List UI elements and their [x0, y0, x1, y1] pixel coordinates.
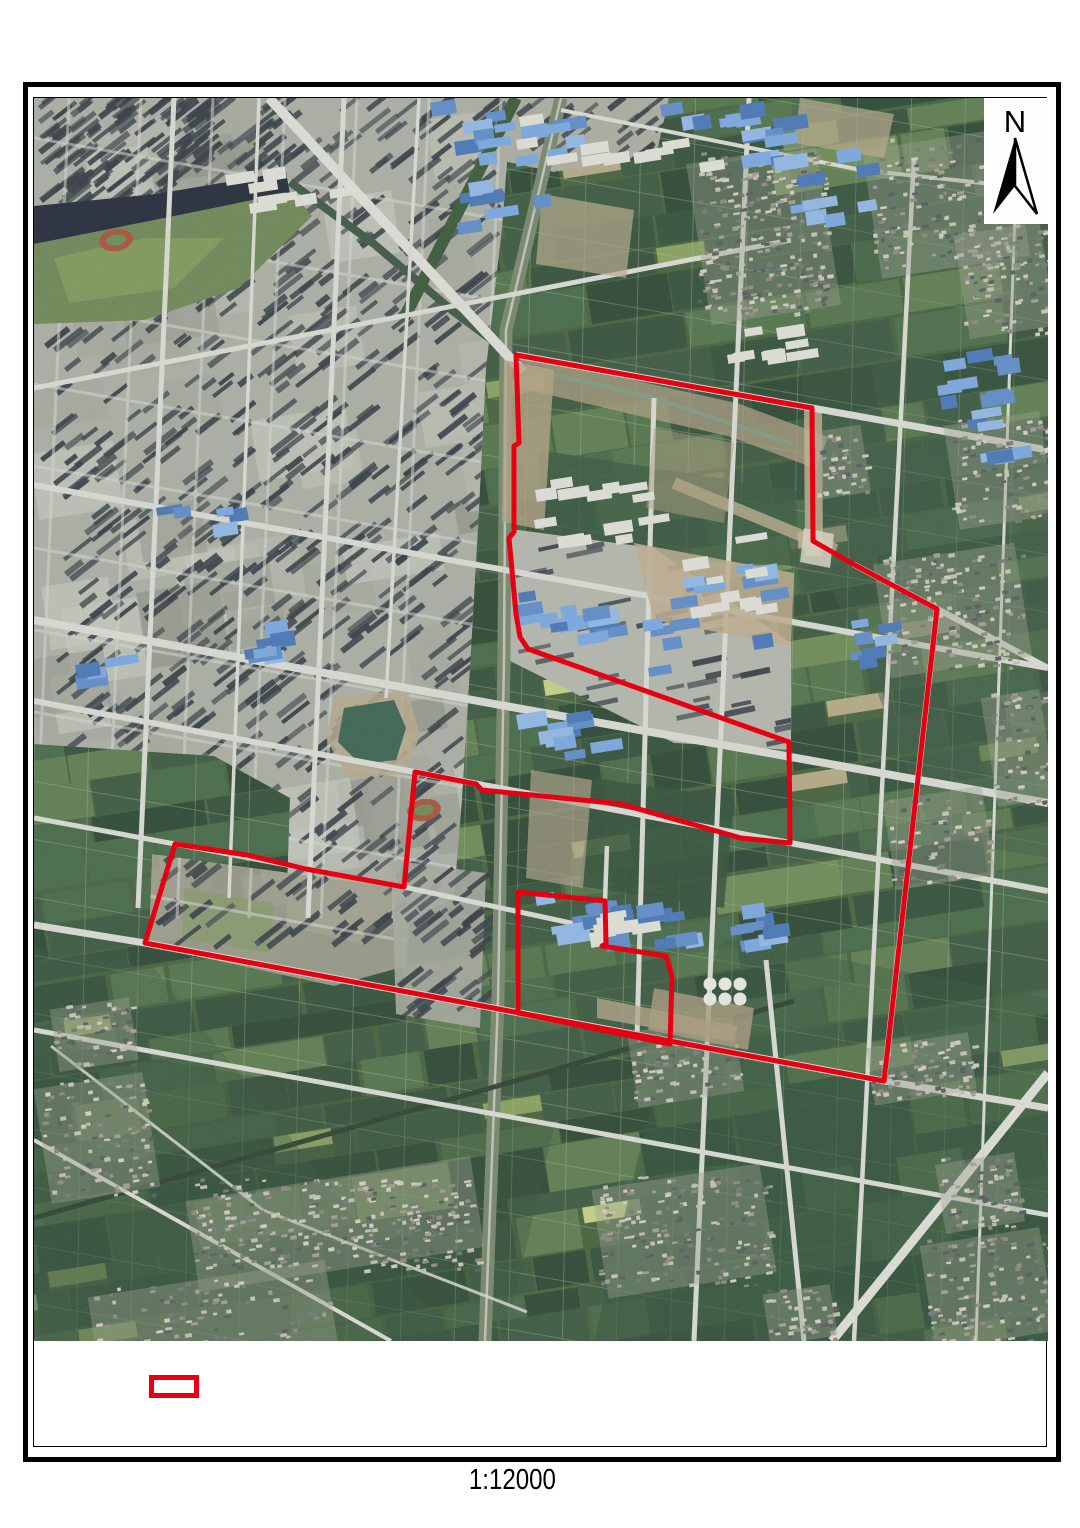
svg-text:N: N	[1003, 104, 1025, 139]
